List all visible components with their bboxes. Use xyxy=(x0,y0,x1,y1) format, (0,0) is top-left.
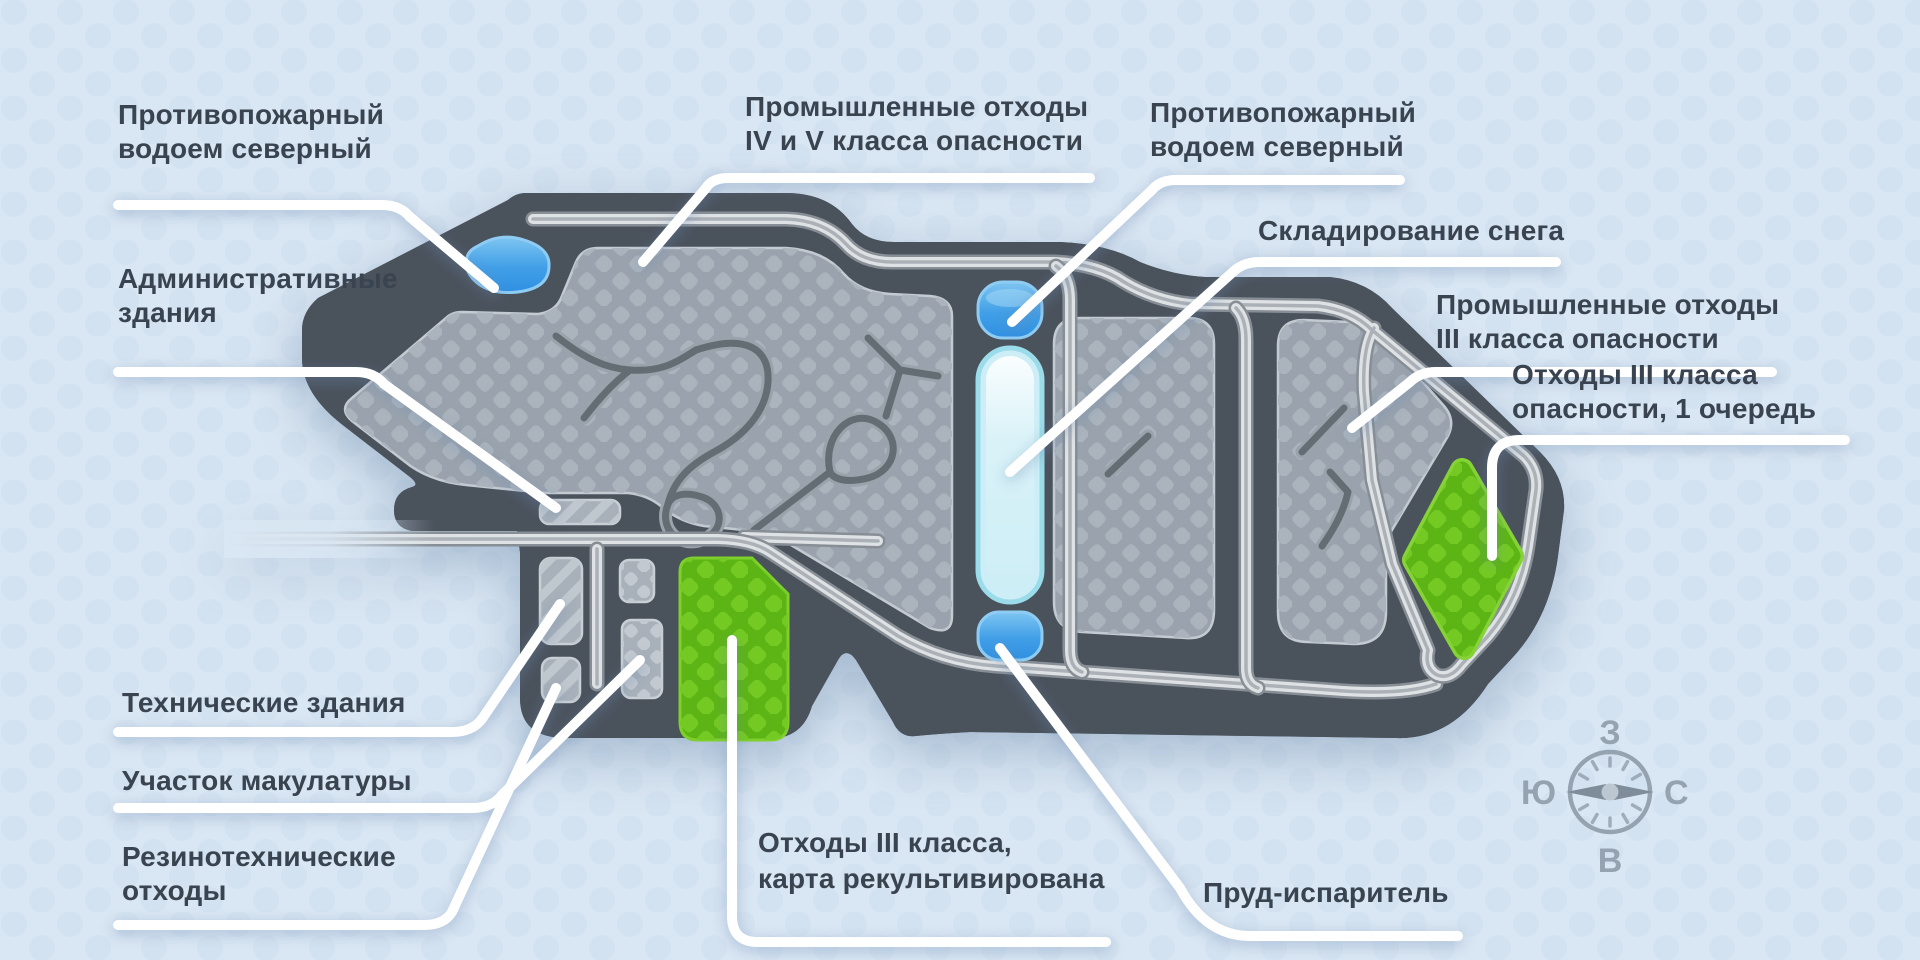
compass-south-label: Ю xyxy=(1521,774,1556,812)
road-west-fadeout xyxy=(224,520,434,558)
pond-fire-reservoir-north xyxy=(978,282,1042,338)
site-map-figure: З Ю С В Противопожарный водоем северный … xyxy=(0,0,1920,960)
label-snow-storage: Складирование снега xyxy=(1258,215,1564,246)
label-technical-buildings: Технические здания xyxy=(122,687,406,718)
label-paper-recycling: Участок макулатуры xyxy=(122,765,412,796)
label-evaporation-pond: Пруд-испаритель xyxy=(1203,877,1449,908)
infographic-stage: З Ю С В Противопожарный водоем северный … xyxy=(0,0,1920,960)
compass-north-label: С xyxy=(1664,774,1689,812)
pond-fire-reservoir-west xyxy=(466,237,549,292)
compass-west-label: З xyxy=(1599,714,1620,752)
pond-evaporation xyxy=(978,612,1042,660)
building-paper-small xyxy=(620,560,654,602)
compass-east-label: В xyxy=(1598,842,1623,880)
